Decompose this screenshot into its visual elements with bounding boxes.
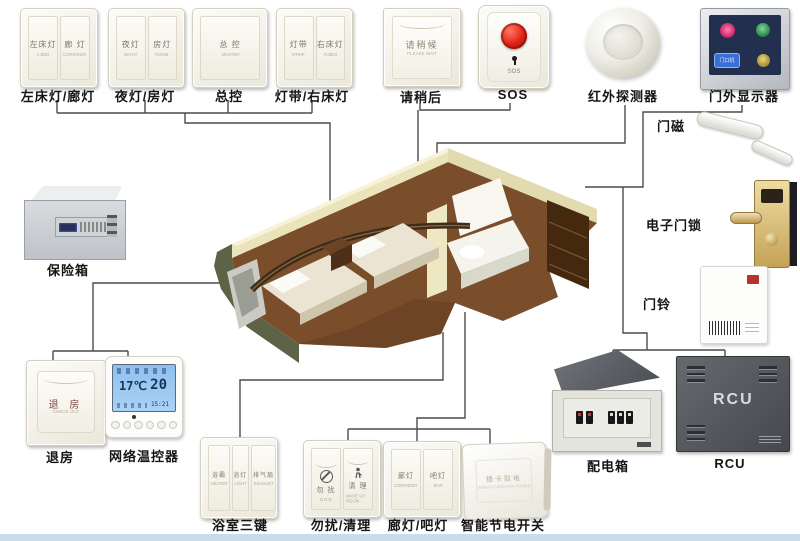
key-left-bed-light: 左床灯 L.BED [28,16,58,80]
energy-saver-sub: INSERT CARD FOR POWER [477,483,531,490]
door-display-panel: 门口机 [700,8,790,90]
switch-master: 总 控 MASTER [192,8,268,88]
rcu-vent-group [759,366,777,383]
safe-box [24,186,126,260]
lcd-status-segments [117,368,171,374]
ir-detector-lens [603,24,643,60]
label-switch-master: 总控 [189,86,269,105]
key-light-strip: 灯带 STRIP [284,16,314,80]
rcu-controller: RCU [676,356,790,452]
clock-icon [757,54,770,67]
key-corridor-light: 廊 灯 CORRIDOR [60,16,90,80]
dnd-flower-icon [720,23,735,38]
label-safe: 保险箱 [35,260,101,279]
label-door-display: 门外显示器 [697,86,791,105]
label-switch-night-room: 夜灯/房灯 [95,86,195,105]
lock-faceplate [754,180,790,268]
distribution-box [552,350,662,452]
key-bath-heater: 浴霸 HEATER [208,445,230,511]
switch-strip-right-bed: 灯带 STRIP 右床灯 R.BED [276,8,353,88]
circuit-breaker [617,411,624,424]
hotel-room-control-system-diagram: 左床灯 L.BED 廊 灯 CORRIDOR 左床灯/廊灯 夜灯 NIGHT 房… [0,0,800,541]
key-do-not-disturb: 勿 扰 D.N.D [311,448,341,510]
rcu-vent-group [687,366,705,383]
thermostat-buttons [111,421,177,429]
circuit-breaker [608,411,615,424]
rcu-fine-print [759,436,781,443]
rcu-text: RCU [713,391,754,409]
photo-edge-strip [0,534,800,541]
distribution-box-vent [637,442,651,447]
key-make-up-room: 清 理 MAKE UP ROOM [343,448,373,510]
keyhole-icon [512,56,517,61]
doorplate-icon: 门口机 [714,53,740,68]
electronic-door-lock [730,180,800,268]
lock-knob [765,233,778,246]
sos-panel: SOS [478,5,550,89]
service-green-icon [756,23,770,37]
bathroom-three-key-switch: 浴霸 HEATER 浴灯 LIGHT 排气扇 EXHAUST [200,437,278,519]
sos-red-button [501,23,527,49]
bathroom-sink [460,245,484,259]
label-energy-saver: 智能节电开关 [453,515,553,534]
label-switch-left-bed: 左床灯/廊灯 [8,86,108,105]
key-exhaust-fan: 排气扇 EXHAUST [251,445,277,511]
dnd-makeup-switch: 勿 扰 D.N.D 清 理 MAKE UP ROOM [303,440,381,518]
switch-left-bed-corridor: 左床灯 L.BED 廊 灯 CORRIDOR [20,8,98,88]
label-doorbell: 门铃 [637,294,677,313]
label-dnd-makeup: 勿扰/清理 [305,515,377,534]
lock-handle [730,212,762,224]
key-master: 总 控 MASTER [200,16,260,80]
panel-arc-line [399,19,445,29]
label-rcu: RCU [700,456,760,471]
circuit-breaker [586,411,593,424]
circuit-breaker [576,411,583,424]
rcu-vent-group [687,425,705,442]
label-ir-detector: 红外探测器 [578,86,668,105]
lcd-mode-segments [117,403,147,408]
distribution-box-body [552,390,662,452]
label-door-lock: 电子门锁 [636,215,712,234]
please-wait-text: 请稍候 [393,38,451,51]
thermostat-lcd: 17℃ 20 15:21 [112,364,176,412]
safe-side-slots [107,215,117,237]
sos-text: SOS [488,69,540,75]
energy-saver-switch: 插卡取电 INSERT CARD FOR POWER [462,442,549,521]
label-checkout: 退房 [36,447,84,466]
checkout-panel: 退 房 CHECK OUT [26,360,106,446]
key-bar-lamp: 吧灯 BAR [423,449,453,510]
please-wait-panel: 请稍候 PLEASE WAIT [383,8,461,87]
safe-front-face [24,200,126,260]
breaker-recess [563,398,651,438]
label-corridor-bar: 廊灯/吧灯 [382,515,454,534]
label-thermostat: 网络温控器 [98,446,190,465]
thermostat-sensor-dot [132,415,136,419]
doorbell-indicator [747,275,759,284]
key-corridor-lamp: 廊灯 CORRIDOR [391,449,421,510]
circuit-breaker [626,411,633,424]
lcd-time: 15:21 [151,401,169,408]
safe-display [59,223,77,232]
label-switch-strip-right-bed: 灯带/右床灯 [262,86,362,105]
key-night-light: 夜灯 NIGHT [116,16,146,80]
key-bath-light: 浴灯 LIGHT [232,445,249,511]
energy-saver-card-edge [543,448,551,510]
label-please-wait: 请稍后 [383,87,459,106]
lock-card-window [761,189,783,203]
no-disturb-icon [320,470,333,483]
checkout-sub: CHECK OUT [38,409,94,414]
checkout-arc-line [44,374,89,384]
switch-night-room: 夜灯 NIGHT 房灯 ROOM [108,8,185,88]
label-sos: SOS [478,87,548,102]
please-wait-sub: PLEASE WAIT [393,51,451,56]
lcd-room-temp: 20 [150,377,167,393]
key-room-light: 房灯 ROOM [148,16,178,80]
doorbell-barcode [709,321,741,335]
label-door-magnet: 门磁 [651,116,691,135]
label-bath-keys: 浴室三键 [208,515,272,534]
thermostat: 17℃ 20 15:21 [105,356,183,438]
doorbell-fine-print [745,323,759,333]
label-dist-box: 配电箱 [568,456,648,475]
corridor-bar-switch: 廊灯 CORRIDOR 吧灯 BAR [383,441,461,518]
key-right-bed-light: 右床灯 R.BED [316,16,346,80]
ir-detector-dome [586,8,660,78]
cleaner-person-icon [352,467,364,479]
lcd-set-temp: 17℃ [119,379,147,393]
doorbell-device [700,266,768,344]
